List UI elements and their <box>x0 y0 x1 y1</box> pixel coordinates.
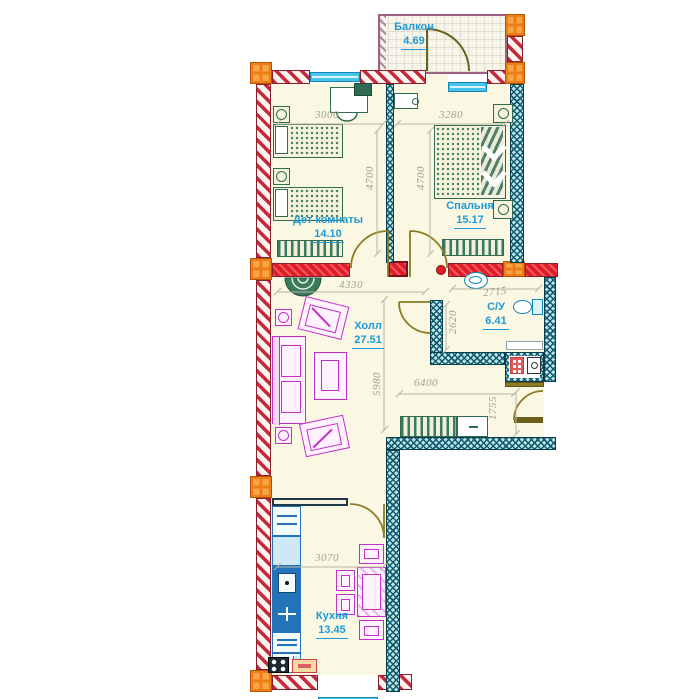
room-label-kids: Дет комнаты 14.10 <box>288 214 368 243</box>
wall-kitchen-top <box>272 498 348 506</box>
wall-left-1 <box>256 84 271 258</box>
dim-bedroom-width: 3280 <box>406 109 496 121</box>
boiler-icon <box>510 357 524 374</box>
wall-bath-right <box>544 277 556 382</box>
kitchen-name: Кухня <box>294 610 370 624</box>
dim-entry-height: 1755 <box>487 386 499 430</box>
floor-plan: Балкон 4.69 Дет комнаты 14.10 Спальня 15… <box>0 0 699 699</box>
kids-area: 14.10 <box>312 228 344 243</box>
bedroom-area: 15.17 <box>454 214 486 229</box>
room-label-kitchen: Кухня 13.45 <box>294 610 370 639</box>
corner-column <box>250 62 272 84</box>
hall-cabinet-icon <box>457 416 488 437</box>
wall-left-2 <box>256 280 271 476</box>
corner-column <box>250 476 272 498</box>
shelf <box>506 341 543 350</box>
bed-head <box>481 127 503 195</box>
dim-hall-height: 5980 <box>371 362 383 406</box>
blanket <box>290 189 340 217</box>
wardrobe-icon <box>394 93 418 109</box>
window-bedroom-balcony <box>448 82 487 92</box>
corner-column <box>505 14 525 36</box>
hall-area: 27.51 <box>352 334 384 349</box>
column-marker <box>436 265 446 275</box>
room-label-bath: С/У 6.41 <box>470 301 522 330</box>
side-table-flower-icon <box>273 168 290 185</box>
kids-name: Дет комнаты <box>288 214 368 228</box>
wall-top-left <box>272 70 310 84</box>
washing-machine-icon <box>527 357 541 374</box>
computer-icon <box>354 83 372 96</box>
dim-bath-height: 2620 <box>447 300 459 344</box>
wardrobe-icon <box>442 239 504 256</box>
wall-top-mid <box>360 70 426 84</box>
wall-left-3 <box>256 498 271 670</box>
dim-bedroom-height: 4700 <box>415 156 427 200</box>
nightstand-icon <box>493 104 513 123</box>
room-label-bedroom: Спальня 15.17 <box>432 200 508 229</box>
kitchen-area: 13.45 <box>316 624 348 639</box>
pillow-icon <box>275 126 288 154</box>
balcony-area: 4.69 <box>401 35 426 50</box>
bedroom-name: Спальня <box>432 200 508 214</box>
corner-column <box>250 258 272 280</box>
appliance-icon <box>292 659 317 673</box>
room-label-balcony: Балкон 4.69 <box>382 21 446 50</box>
wardrobe-icon <box>277 240 343 257</box>
room-label-hall: Холл 27.51 <box>338 320 398 349</box>
wall-band-pillar <box>388 261 408 277</box>
pillow-icon <box>275 189 288 217</box>
wall-bath-bottom <box>430 352 505 365</box>
sofa-icon <box>272 336 306 424</box>
side-table-flower-icon <box>275 427 292 444</box>
kids-bed-icon <box>273 124 343 158</box>
hall-wardrobe-icon <box>400 416 457 437</box>
coffee-table-icon <box>314 352 347 400</box>
dim-corridor-width: 6400 <box>402 377 450 389</box>
wall-band-right <box>525 263 558 277</box>
dim-kids-height: 4700 <box>364 156 376 200</box>
window-kids <box>310 72 360 82</box>
blanket <box>290 126 340 154</box>
entry-shelf <box>505 382 544 387</box>
dim-kids-width: 3000 <box>282 109 372 121</box>
balcony-name: Балкон <box>382 21 446 35</box>
dim-hall-width: 4330 <box>306 279 396 291</box>
wall-kitchen-right <box>386 450 400 692</box>
wall-bottom-corner <box>398 674 412 690</box>
bath-name: С/У <box>470 301 522 315</box>
kitchen-sink-icon <box>272 566 301 598</box>
side-table-flower-icon <box>275 309 292 326</box>
wall-balcony-right <box>507 36 523 62</box>
bath-area: 6.41 <box>483 315 508 330</box>
wall-bottom-left <box>272 675 318 690</box>
blanket <box>436 127 481 195</box>
wall-band-left <box>272 263 350 277</box>
stove-icon <box>268 657 289 673</box>
hall-name: Холл <box>338 320 398 334</box>
chair-icon <box>336 570 355 591</box>
wall-corridor-bottom <box>386 437 556 450</box>
knob <box>412 98 419 105</box>
kitchen-cabinet <box>272 506 301 536</box>
wall-top-right <box>487 70 507 84</box>
corner-column <box>503 261 525 277</box>
corner-column <box>505 62 525 84</box>
wall-room-divider <box>386 84 394 263</box>
corner-column <box>250 670 272 692</box>
dim-kitchen-width: 3070 <box>282 552 372 564</box>
double-bed-icon <box>434 125 506 199</box>
